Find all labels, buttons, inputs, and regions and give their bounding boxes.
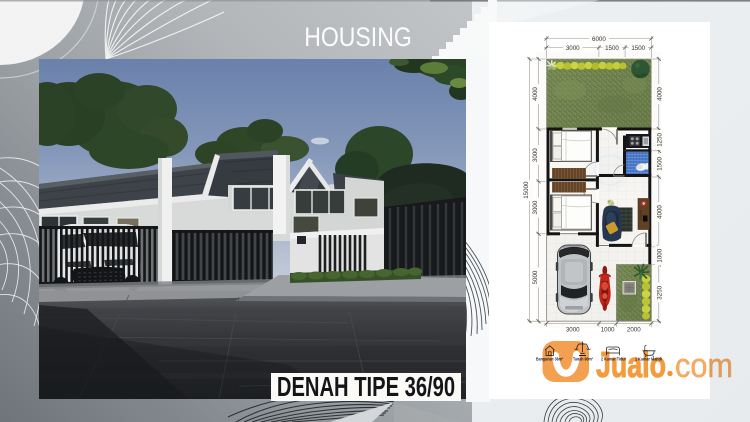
svg-text:1500: 1500 — [656, 156, 663, 170]
svg-text:2000: 2000 — [627, 327, 641, 334]
svg-text:15000: 15000 — [523, 181, 530, 199]
svg-text:4000: 4000 — [656, 87, 663, 101]
svg-text:1500: 1500 — [631, 45, 645, 52]
svg-text:3000: 3000 — [566, 327, 580, 334]
svg-text:1500: 1500 — [605, 45, 619, 52]
svg-text:3000: 3000 — [532, 148, 539, 162]
svg-text:3250: 3250 — [656, 285, 663, 299]
svg-text:3000: 3000 — [566, 45, 580, 52]
svg-text:1250: 1250 — [656, 132, 663, 146]
svg-text:1000: 1000 — [601, 327, 615, 334]
svg-text:6000: 6000 — [592, 36, 606, 43]
svg-text:3000: 3000 — [532, 200, 539, 214]
svg-text:4000: 4000 — [656, 205, 663, 219]
svg-text:com: com — [675, 347, 733, 385]
svg-text:Jualo: Jualo — [596, 344, 666, 385]
svg-text:5000: 5000 — [532, 270, 539, 284]
svg-text:1000: 1000 — [656, 248, 663, 262]
svg-text:4000: 4000 — [532, 87, 539, 101]
